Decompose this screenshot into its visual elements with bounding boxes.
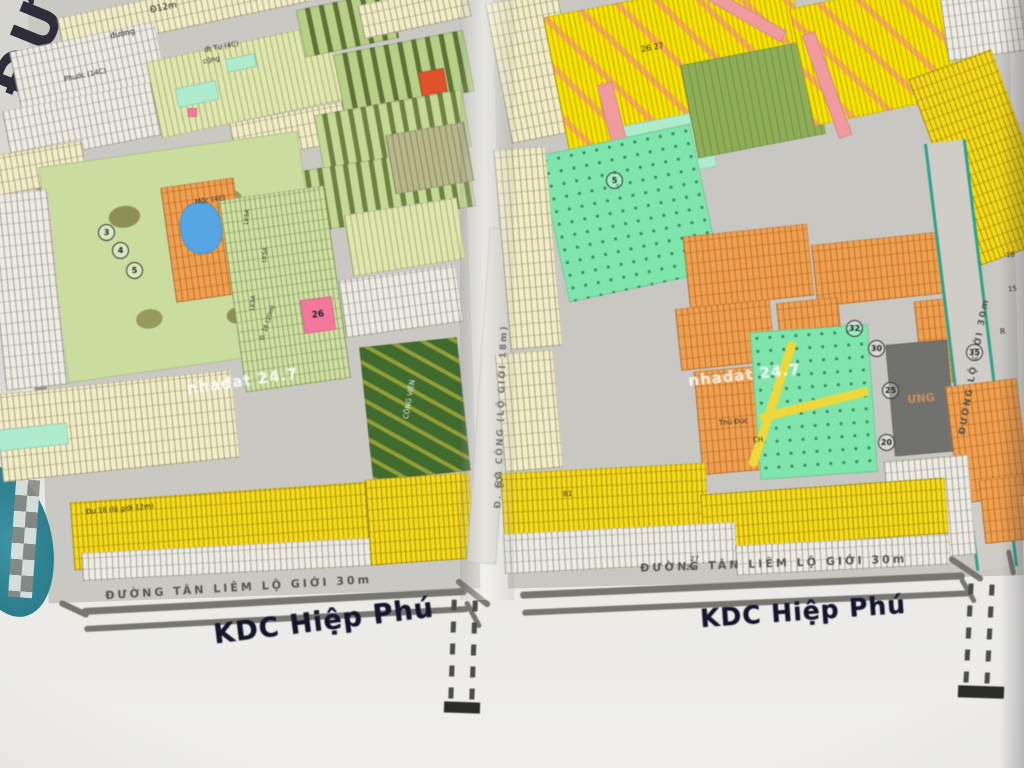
park-area [359,337,470,481]
parcel-patch [188,108,197,117]
lot-number-circle: 5 [126,262,143,279]
page-fold [460,0,514,600]
map-photo: ĐƯ 26ƯNGĐ12mđườngđt Tư (4C)cộngPhước (14… [0,0,1024,768]
street-label: B1 [563,491,573,498]
lot-number-circle: 4 [112,242,129,259]
road-end-bar [444,701,480,713]
lot-number-circle: 35 [966,344,983,361]
street-label: CH [753,437,764,445]
lot-number-circle: 3 [98,224,115,241]
parcel-block: 26 [300,296,336,334]
lot-number-circle: 25 [882,382,899,399]
lot-number-circle: 30 [868,340,885,357]
road-end-bar [958,685,1004,699]
parcel-row [365,472,475,565]
dashed-road [448,600,478,703]
building-marker [418,68,448,96]
photo-edge-shadow [1000,0,1024,768]
area-title: KDC Hiệp Phú [699,590,907,633]
lot-number-circle: 5 [606,172,623,189]
parcel-row [811,231,949,306]
parcel-row [683,224,815,309]
lot-number-circle: 20 [878,434,895,451]
lot-number-circle: 32 [846,320,863,337]
dashed-road [963,583,994,684]
